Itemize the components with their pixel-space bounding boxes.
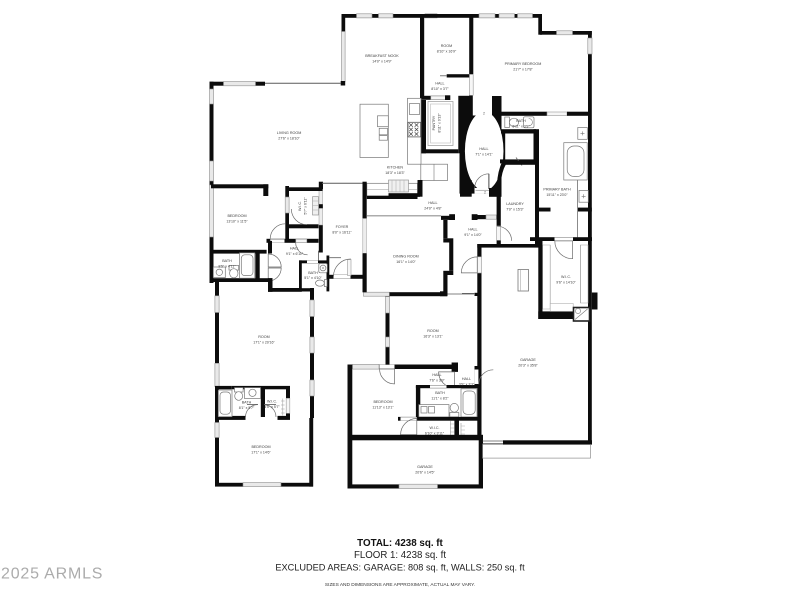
svg-text:PANTRY: PANTRY xyxy=(432,115,436,130)
svg-text:KITCHEN: KITCHEN xyxy=(387,166,404,170)
svg-text:17'1" x 14'6": 17'1" x 14'6" xyxy=(251,450,271,454)
svg-text:BATH: BATH xyxy=(222,259,232,263)
svg-text:2025 ARMLS: 2025 ARMLS xyxy=(1,566,103,583)
svg-text:GARAGE: GARAGE xyxy=(417,465,433,469)
svg-text:3'9" x 3'3": 3'9" x 3'3" xyxy=(459,382,475,386)
svg-text:2: 2 xyxy=(483,112,485,116)
svg-text:HALL: HALL xyxy=(290,247,299,251)
svg-text:W.I.C.: W.I.C. xyxy=(561,275,571,279)
svg-text:LAUNDRY: LAUNDRY xyxy=(506,202,524,206)
svg-text:8'10" x 3'7": 8'10" x 3'7" xyxy=(431,87,449,91)
svg-text:8'5" x 4'11": 8'5" x 4'11" xyxy=(218,264,236,268)
svg-text:20'3" x 35'8": 20'3" x 35'8" xyxy=(518,363,538,367)
svg-text:BATH: BATH xyxy=(516,119,526,123)
svg-text:FLOOR 1: 4238 sq. ft: FLOOR 1: 4238 sq. ft xyxy=(354,550,446,561)
svg-text:7'0" x 15'3": 7'0" x 15'3" xyxy=(506,207,524,211)
svg-text:PRIMARY BATH: PRIMARY BATH xyxy=(543,188,571,192)
svg-text:BEDROOM: BEDROOM xyxy=(251,445,270,449)
svg-text:9'1" x 6'11": 9'1" x 6'11" xyxy=(286,252,304,256)
svg-text:W.I.C.: W.I.C. xyxy=(267,400,277,404)
svg-text:BREAKFAST NOOK: BREAKFAST NOOK xyxy=(365,54,399,58)
svg-text:24'0" x 4'8": 24'0" x 4'8" xyxy=(424,206,442,210)
svg-text:EXCLUDED AREAS: GARAGE: 808 sq: EXCLUDED AREAS: GARAGE: 808 sq. ft, WALL… xyxy=(275,562,525,572)
svg-text:ROOM: ROOM xyxy=(427,329,438,333)
svg-text:BATH: BATH xyxy=(435,391,445,395)
svg-text:8'10" x 16'9": 8'10" x 16'9" xyxy=(437,49,457,53)
svg-text:2: 2 xyxy=(484,191,486,195)
svg-text:8'11" x 9'13": 8'11" x 9'13" xyxy=(437,113,441,133)
svg-text:8'0" x 16'11": 8'0" x 16'11" xyxy=(332,230,352,234)
svg-text:15'11" x 23'0": 15'11" x 23'0" xyxy=(546,193,568,197)
svg-text:13'10" x 11'5": 13'10" x 11'5" xyxy=(226,219,248,223)
svg-text:16'1" x 14'0": 16'1" x 14'0" xyxy=(396,260,416,264)
svg-text:HALL: HALL xyxy=(468,228,477,232)
svg-text:FOYER: FOYER xyxy=(336,225,349,229)
svg-text:HALL: HALL xyxy=(432,373,441,377)
svg-text:ROOM: ROOM xyxy=(441,44,452,48)
svg-text:5'7" x 6'11": 5'7" x 6'11" xyxy=(303,197,307,215)
svg-text:HALL: HALL xyxy=(435,82,444,86)
svg-text:GARAGE: GARAGE xyxy=(520,358,536,362)
svg-text:5'1" x 4'10": 5'1" x 4'10" xyxy=(304,276,322,280)
svg-text:14'0" x 14'9": 14'0" x 14'9" xyxy=(372,59,392,63)
svg-text:LIVING ROOM: LIVING ROOM xyxy=(277,131,302,135)
svg-text:9'1" x 14'0": 9'1" x 14'0" xyxy=(464,233,482,237)
svg-text:11'13" x 13'1": 11'13" x 13'1" xyxy=(372,405,394,409)
svg-text:W.I.C.: W.I.C. xyxy=(429,426,439,430)
svg-text:BATH: BATH xyxy=(308,271,318,275)
svg-text:TOTAL: 4238 sq. ft: TOTAL: 4238 sq. ft xyxy=(357,538,443,549)
svg-text:8'1" x 5'7": 8'1" x 5'7" xyxy=(239,406,255,410)
svg-text:18'3" x 18'3": 18'3" x 18'3" xyxy=(385,171,405,175)
svg-text:HALL: HALL xyxy=(462,377,471,381)
svg-text:11'1" x 8'2": 11'1" x 8'2" xyxy=(431,396,449,400)
svg-text:DINING ROOM: DINING ROOM xyxy=(393,255,418,259)
svg-text:5'11" x 3'9": 5'11" x 3'9" xyxy=(512,124,530,128)
svg-text:27'6" x 18'10": 27'6" x 18'10" xyxy=(278,136,300,140)
svg-text:9'6" x 14'10": 9'6" x 14'10" xyxy=(556,280,576,284)
svg-text:20'6" x 14'5": 20'6" x 14'5" xyxy=(415,470,435,474)
svg-text:BEDROOM: BEDROOM xyxy=(227,214,246,218)
svg-text:BEDROOM: BEDROOM xyxy=(373,400,392,404)
svg-text:SIZES AND DIMENSIONS ARE APPRO: SIZES AND DIMENSIONS ARE APPROXIMATE, AC… xyxy=(325,582,475,588)
svg-text:W.I.C.: W.I.C. xyxy=(298,201,302,211)
svg-text:HALL: HALL xyxy=(428,201,437,205)
svg-text:6'10" x 3'11": 6'10" x 3'11" xyxy=(425,431,445,435)
svg-text:16'3" x 13'1": 16'3" x 13'1" xyxy=(423,334,443,338)
svg-text:PRIMARY BEDROOM: PRIMARY BEDROOM xyxy=(505,62,542,66)
svg-text:7'1" x 14'1": 7'1" x 14'1" xyxy=(475,152,493,156)
svg-text:21'7" x 17'8": 21'7" x 17'8" xyxy=(513,67,533,71)
svg-text:17'1" x 20'16": 17'1" x 20'16" xyxy=(253,340,275,344)
svg-text:ROOM: ROOM xyxy=(258,335,269,339)
svg-text:HALL: HALL xyxy=(479,147,488,151)
svg-text:7'6" x 3'9": 7'6" x 3'9" xyxy=(429,378,445,382)
svg-text:BATH: BATH xyxy=(242,401,252,405)
